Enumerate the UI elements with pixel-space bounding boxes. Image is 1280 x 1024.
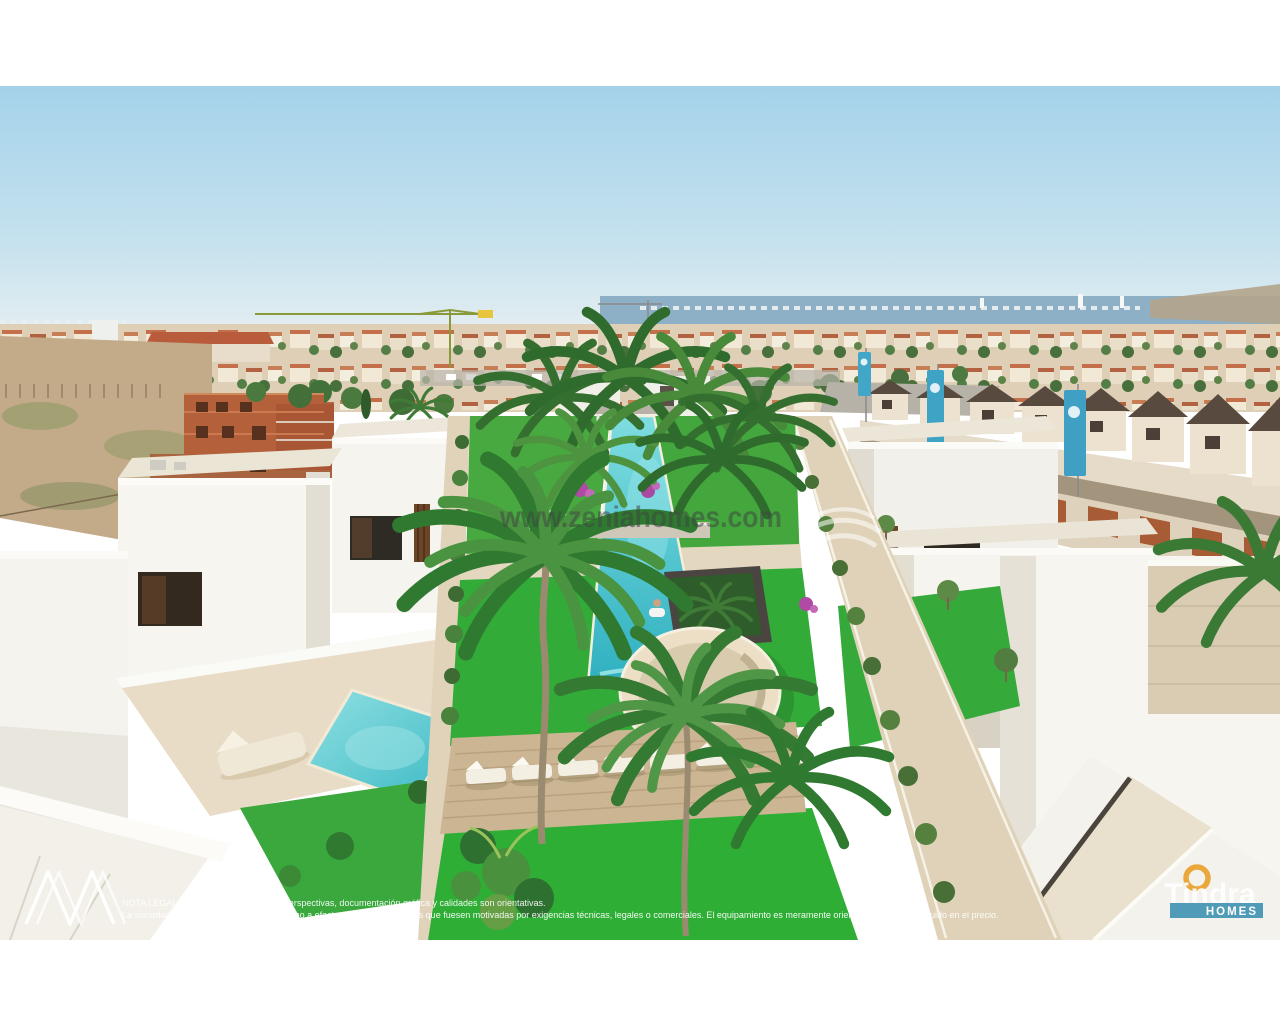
legal-line-1: NOTA LEGAL: La presente información, per… bbox=[122, 898, 546, 908]
stone-wall bbox=[1148, 566, 1280, 714]
villa-front-left bbox=[118, 448, 342, 678]
bottom-margin bbox=[0, 940, 1280, 1024]
render-photo: www.zeniahomes.com NOTA LEGAL: La presen… bbox=[0, 86, 1280, 940]
legal-line-2: La sociedad vendedora se reserva el dere… bbox=[122, 910, 999, 920]
top-margin bbox=[0, 0, 1280, 86]
watermark-text: www.zeniahomes.com bbox=[499, 501, 782, 534]
logo-tagline: HOMES bbox=[1206, 906, 1258, 918]
